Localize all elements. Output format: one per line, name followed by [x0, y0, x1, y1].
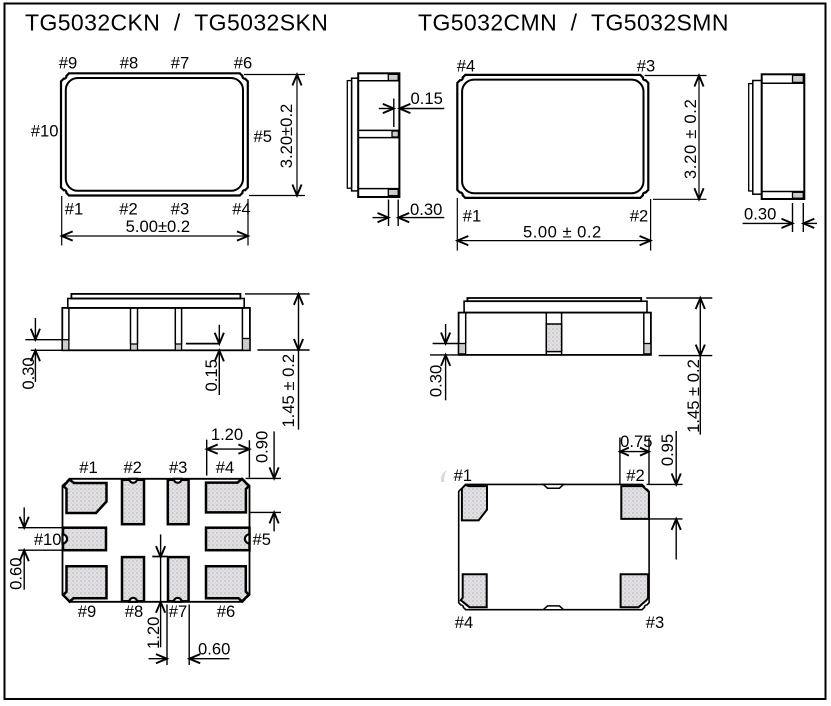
svg-text:0.75: 0.75 [620, 432, 652, 451]
svg-text:#3: #3 [169, 458, 187, 477]
svg-text:#9: #9 [59, 54, 77, 73]
svg-text:#1: #1 [65, 200, 83, 219]
svg-text:#8: #8 [125, 602, 143, 621]
svg-text:TG5032CKN / TG5032SKN: TG5032CKN / TG5032SKN [25, 10, 328, 36]
svg-text:#5: #5 [254, 127, 272, 146]
svg-text:1.20: 1.20 [144, 617, 163, 649]
svg-text:#10: #10 [34, 530, 62, 549]
svg-text:0.95: 0.95 [658, 434, 677, 466]
svg-text:#6: #6 [234, 54, 252, 73]
svg-text:0.30: 0.30 [744, 205, 776, 224]
svg-text:#6: #6 [217, 602, 235, 621]
svg-text:#3: #3 [171, 200, 189, 219]
svg-text:0.90: 0.90 [252, 431, 271, 463]
svg-text:5.00 ± 0.2: 5.00 ± 0.2 [523, 222, 602, 241]
svg-text:#2: #2 [626, 466, 644, 485]
svg-text:5.00±0.2: 5.00±0.2 [126, 217, 190, 236]
svg-text:#1: #1 [79, 458, 97, 477]
svg-text:0.15: 0.15 [411, 89, 443, 108]
svg-text:#4: #4 [455, 613, 473, 632]
svg-text:#7: #7 [171, 54, 189, 73]
svg-text:#9: #9 [78, 602, 96, 621]
svg-text:#2: #2 [630, 207, 648, 226]
svg-text:#3: #3 [646, 613, 664, 632]
svg-text:#10: #10 [31, 122, 59, 141]
svg-text:#3: #3 [637, 57, 655, 76]
svg-text:#7: #7 [169, 602, 187, 621]
svg-text:#5: #5 [253, 530, 271, 549]
svg-text:#1: #1 [463, 207, 481, 226]
svg-text:1.45 ± 0.2: 1.45 ± 0.2 [279, 354, 298, 428]
svg-text:#4: #4 [457, 57, 475, 76]
svg-text:3.20±0.2: 3.20±0.2 [277, 104, 296, 168]
svg-text:TG5032CMN / TG5032SMN: TG5032CMN / TG5032SMN [418, 10, 729, 36]
svg-text:1.20: 1.20 [211, 425, 243, 444]
svg-text:#2: #2 [119, 200, 137, 219]
svg-text:0.30: 0.30 [19, 357, 38, 389]
svg-text:0.60: 0.60 [198, 640, 230, 659]
svg-text:#1: #1 [454, 466, 472, 485]
svg-text:#4: #4 [216, 458, 234, 477]
svg-text:0.30: 0.30 [427, 365, 446, 397]
svg-text:#2: #2 [123, 458, 141, 477]
svg-text:1.45 ± 0.2: 1.45 ± 0.2 [684, 359, 703, 433]
svg-text:0.15: 0.15 [202, 359, 221, 391]
svg-text:0.30: 0.30 [410, 200, 442, 219]
svg-text:3.20 ± 0.2: 3.20 ± 0.2 [681, 98, 700, 179]
svg-text:0.60: 0.60 [7, 558, 26, 590]
svg-text:#8: #8 [120, 54, 138, 73]
